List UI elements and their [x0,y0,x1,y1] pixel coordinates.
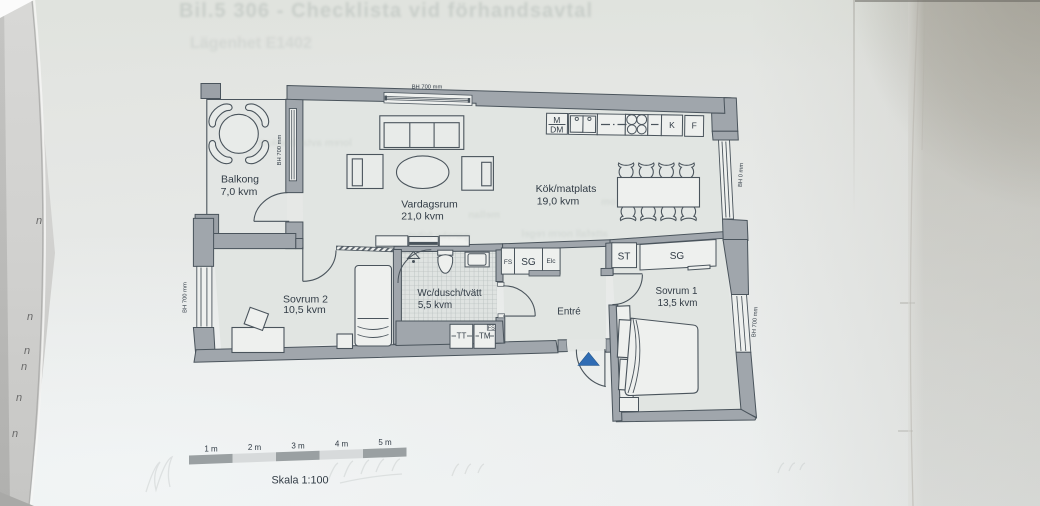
svg-text:BH 700 mm: BH 700 mm [412,84,443,90]
svg-text:om: om [601,197,616,208]
svg-text:13,5 kvm: 13,5 kvm [658,298,698,309]
svg-text:19,0 kvm: 19,0 kvm [537,196,580,208]
svg-text:Kök/matplats: Kök/matplats [536,183,597,195]
svg-text:lorem avtal blankett: lorem avtal blankett [257,138,352,149]
svg-text:2 m: 2 m [248,443,262,452]
svg-text:FS: FS [504,259,513,266]
svg-text:TT: TT [457,332,467,341]
svg-text:BH 700 mm: BH 700 mm [183,282,189,313]
svg-text:K: K [669,120,675,130]
svg-text:4 m: 4 m [335,440,349,449]
svg-text:7,0 kvm: 7,0 kvm [221,186,258,198]
svg-text:M: M [553,115,560,125]
svg-text:DM: DM [550,125,563,135]
svg-text:Elc: Elc [546,258,556,265]
svg-text:5 m: 5 m [378,438,392,447]
svg-text:Vardagsrum: Vardagsrum [401,199,458,211]
svg-text:Skala 1:100: Skala 1:100 [271,475,328,487]
svg-text:ganska frihet: ganska frihet [407,231,470,242]
svg-text:F: F [692,121,697,131]
svg-text:attefall norm regel: attefall norm regel [521,229,608,240]
svg-text:BH 0 mm: BH 0 mm [738,163,745,188]
svg-text:1 m: 1 m [204,445,218,454]
svg-text:10,5 kvm: 10,5 kvm [283,304,326,316]
svg-text:BH 700 mm: BH 700 mm [751,306,759,337]
svg-text:mellan: mellan [468,210,500,221]
svg-text:Wc/dusch/tvätt: Wc/dusch/tvätt [417,288,482,299]
svg-text:21,0 kvm: 21,0 kvm [401,211,444,223]
svg-text:SG: SG [670,251,685,262]
svg-text:SG: SG [521,257,536,268]
svg-text:Sovrum 1: Sovrum 1 [656,286,698,297]
svg-text:3 m: 3 m [291,441,305,450]
svg-text:Balkong: Balkong [221,174,259,186]
svg-text:Entré: Entré [557,307,581,318]
svg-text:ST: ST [618,252,631,263]
svg-text:FS: FS [488,325,495,331]
svg-text:5,5 kvm: 5,5 kvm [418,300,452,311]
svg-text:TM: TM [479,332,491,341]
